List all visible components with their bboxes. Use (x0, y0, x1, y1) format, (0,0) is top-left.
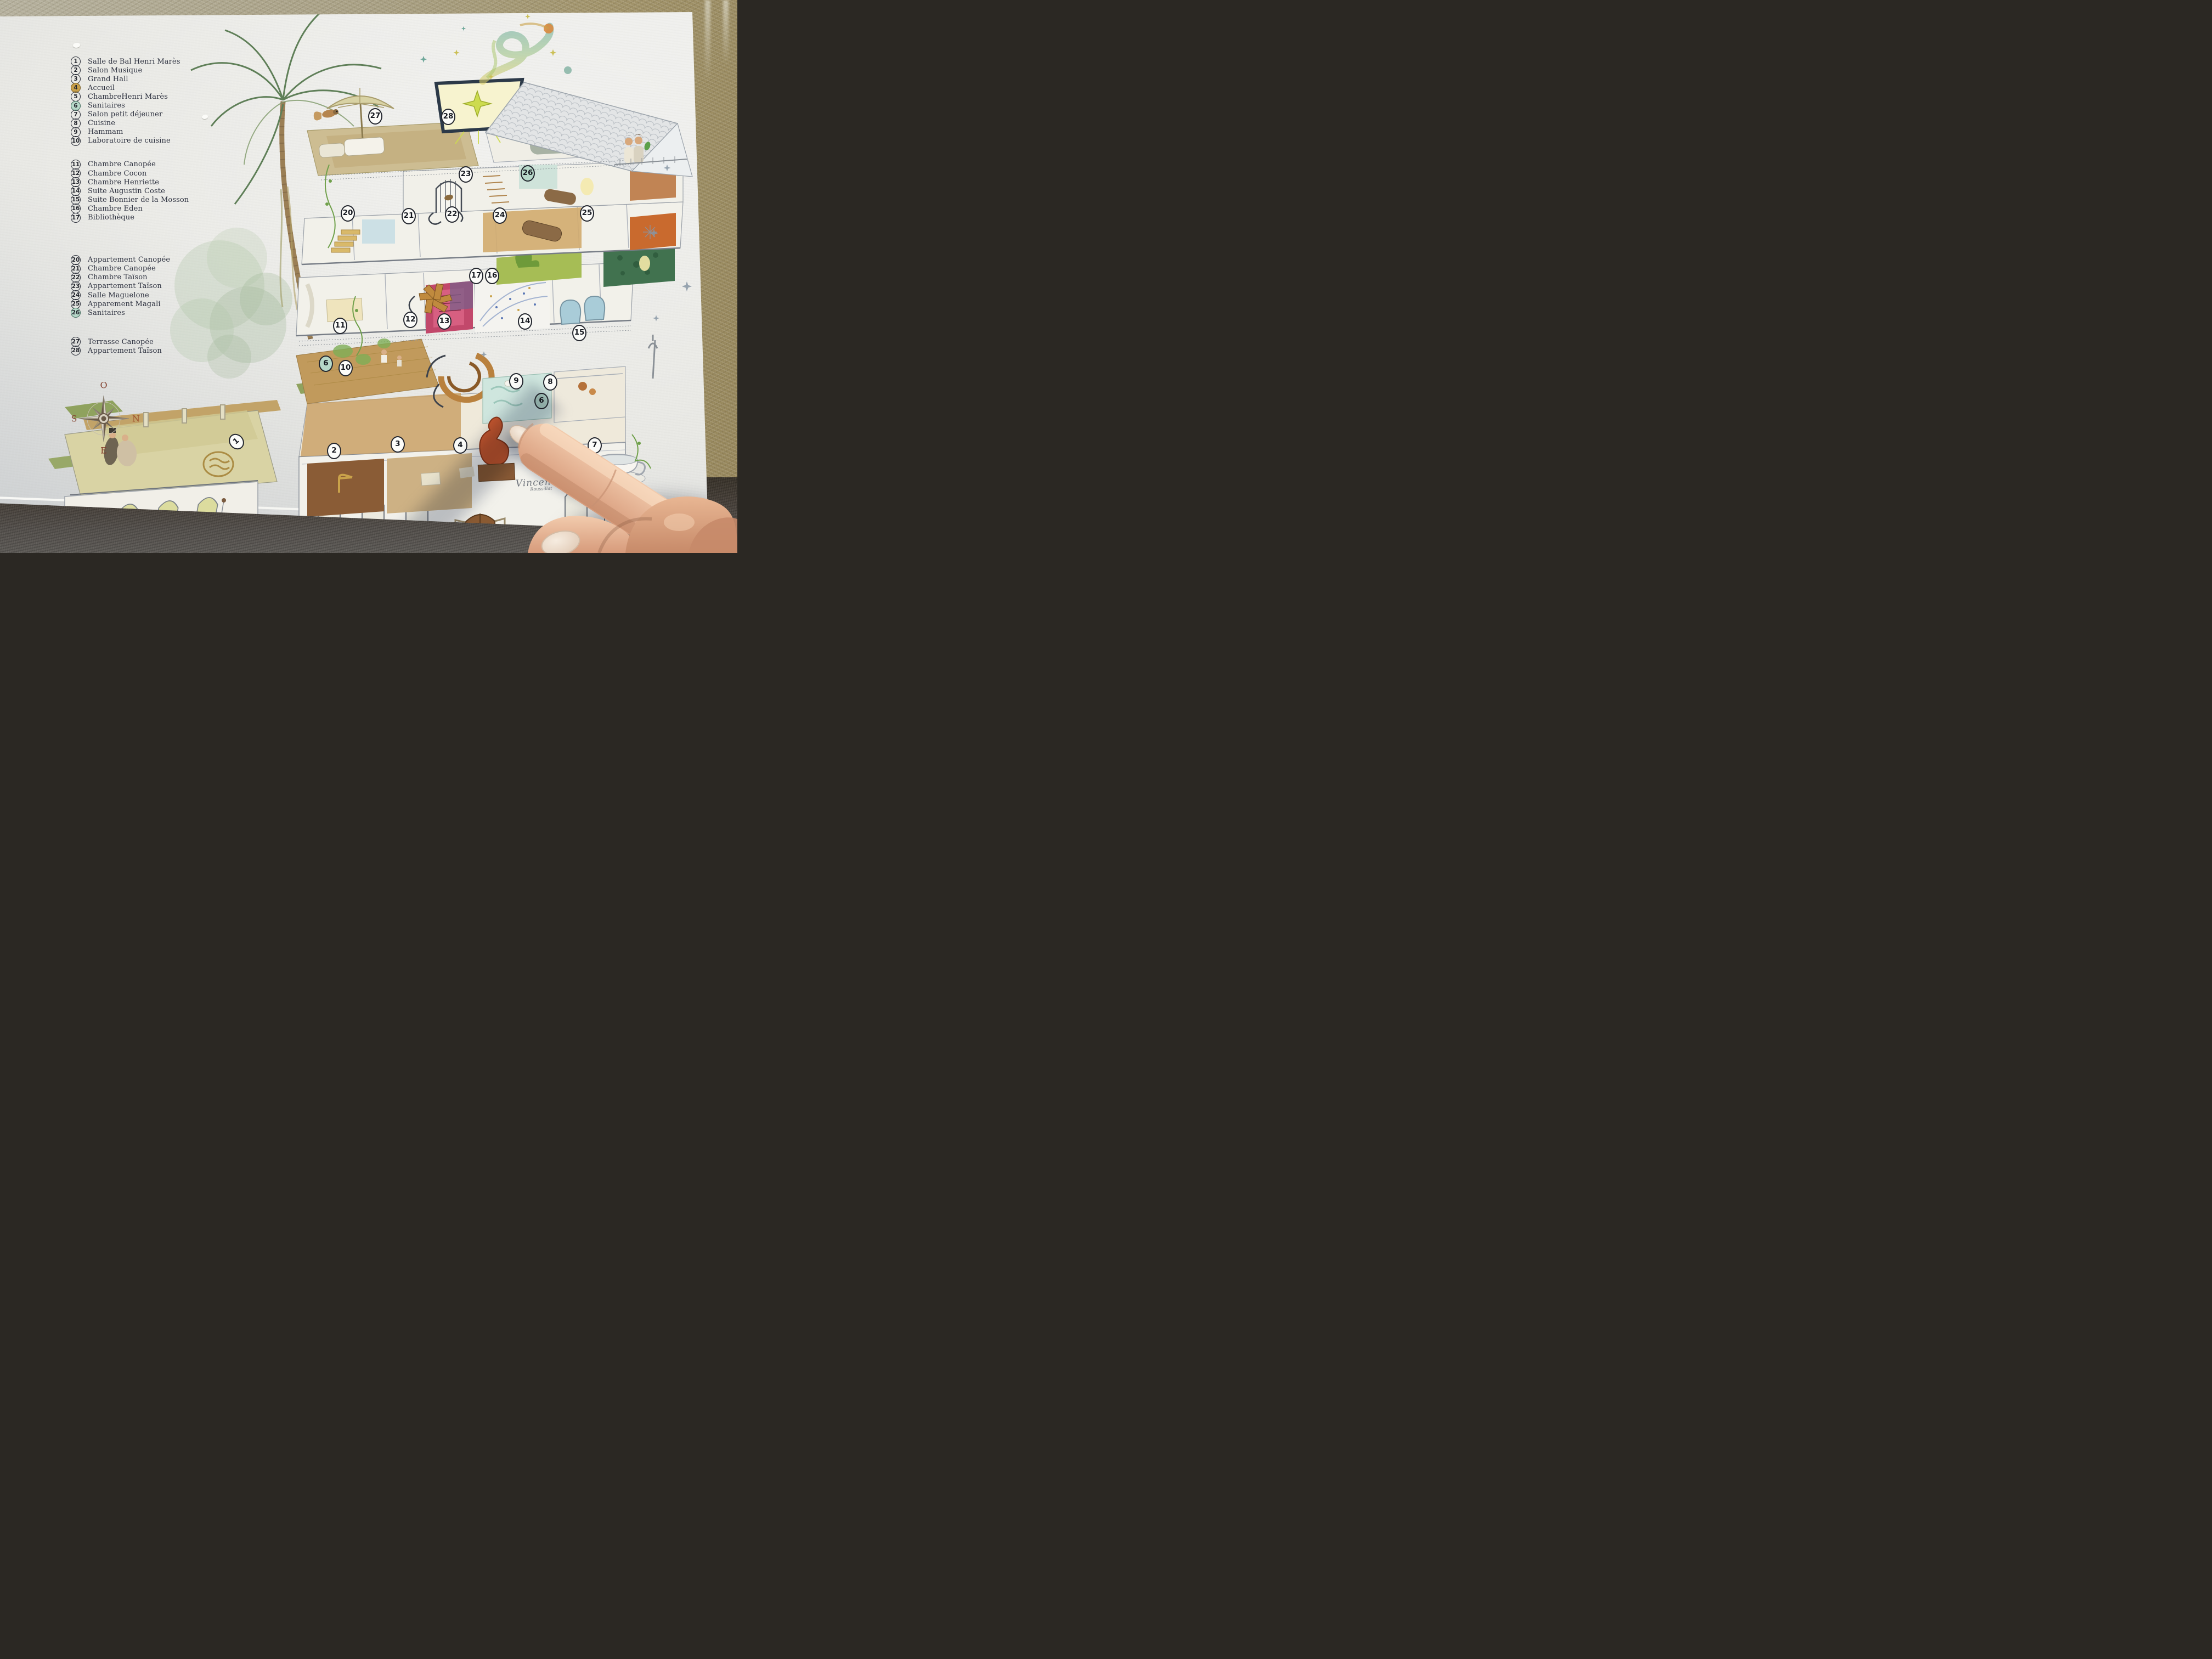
legend-item-21: 21Chambre Canopée (71, 264, 189, 273)
legend-label-27: Terrasse Canopée (88, 338, 154, 346)
legend-label-12: Chambre Cocon (88, 170, 146, 178)
room-marker-16: 16 (485, 268, 499, 284)
legend-number-6: 6 (71, 101, 81, 111)
room-marker-6: 6 (319, 356, 333, 372)
compass-rose: O N S E (71, 377, 142, 459)
legend: 1Salle de Bal Henri Marès2Salon Musique3… (71, 57, 189, 355)
room-marker-25: 25 (580, 205, 594, 222)
legend-label-25: Apparement Magali (88, 300, 161, 308)
legend-label-22: Chambre Taïson (88, 273, 148, 281)
room-marker-10: 10 (338, 360, 353, 376)
compass-letter-sud: S (71, 414, 77, 424)
legend-number-10: 10 (71, 136, 81, 146)
legend-label-9: Hammam (88, 128, 123, 136)
room-marker-7: 7 (588, 437, 602, 454)
legend-label-6: Sanitaires (88, 101, 125, 110)
wall-drip-streak (723, 0, 729, 66)
legend-group-4: 27Terrasse Canopée28Appartement Taïson (71, 337, 189, 355)
legend-label-1: Salle de Bal Henri Marès (88, 58, 180, 66)
legend-group-2: 11Chambre Canopée12Chambre Cocon13Chambr… (71, 160, 189, 222)
legend-label-16: Chambre Eden (88, 205, 143, 213)
legend-label-11: Chambre Canopée (88, 160, 156, 168)
room-marker-17: 17 (469, 268, 483, 284)
legend-item-12: 12Chambre Cocon (71, 169, 189, 178)
legend-group-3: 20Appartement Canopée21Chambre Canopée22… (71, 256, 189, 318)
legend-label-20: Appartement Canopée (88, 256, 170, 264)
room-marker-27: 27 (368, 108, 382, 125)
legend-item-26: 26Sanitaires (71, 308, 189, 317)
legend-item-5: 5ChambreHenri Marès (71, 92, 189, 101)
wall-drip-streak (705, 0, 710, 82)
roof-terrace-illustration (307, 14, 692, 180)
legend-number-26: 26 (71, 308, 81, 318)
legend-number-17: 17 (71, 213, 81, 223)
room-marker-22: 22 (445, 206, 459, 223)
legend-item-22: 22Chambre Taïson (71, 273, 189, 282)
legend-item-2: 2Salon Musique (71, 66, 189, 75)
legend-item-8: 8Cuisine (71, 119, 189, 128)
legend-item-17: 17Bibliothèque (71, 213, 189, 222)
room-marker-15: 15 (572, 325, 586, 341)
legend-item-15: 15Suite Bonnier de la Mosson (71, 195, 189, 204)
legend-label-10: Laboratoire de cuisine (88, 137, 171, 145)
legend-label-4: Accueil (88, 84, 115, 92)
room-marker-11: 11 (333, 318, 347, 334)
illustrated-hotel-map-poster: 1Salle de Bal Henri Marès2Salon Musique3… (0, 0, 737, 553)
legend-label-5: ChambreHenri Marès (88, 93, 168, 101)
legend-label-17: Bibliothèque (88, 213, 134, 222)
legend-label-14: Suite Augustin Coste (88, 187, 165, 195)
room-marker-20: 20 (341, 205, 355, 222)
legend-number-20: 20 (71, 255, 81, 265)
compass-letter-nord: N (132, 414, 140, 424)
legend-item-20: 20Appartement Canopée (71, 256, 189, 264)
legend-item-14: 14Suite Augustin Coste (71, 187, 189, 195)
legend-item-24: 24Salle Maguelone (71, 291, 189, 300)
room-marker-26: 26 (521, 165, 535, 182)
legend-item-28: 28Appartement Taïson (71, 346, 189, 355)
legend-label-15: Suite Bonnier de la Mosson (88, 196, 189, 204)
legend-label-21: Chambre Canopée (88, 264, 156, 273)
compass-letter-ouest: O (100, 380, 107, 391)
room-marker-28: 28 (441, 109, 455, 125)
legend-label-7: Salon petit déjeuner (88, 110, 162, 119)
legend-item-23: 23Appartement Taïson (71, 282, 189, 291)
legend-item-25: 25Apparement Magali (71, 300, 189, 308)
legend-item-4: 4Accueil (71, 83, 189, 92)
legend-item-27: 27Terrasse Canopée (71, 337, 189, 346)
legend-item-10: 10Laboratoire de cuisine (71, 137, 189, 145)
magic-smoke-illustration (420, 14, 572, 81)
legend-label-8: Cuisine (88, 119, 115, 127)
legend-item-1: 1Salle de Bal Henri Marès (71, 57, 189, 66)
room-marker-21: 21 (402, 208, 416, 224)
room-marker-23: 23 (459, 166, 473, 183)
compass-letter-est: E (100, 445, 107, 456)
room-marker-14: 14 (518, 313, 532, 330)
legend-label-3: Grand Hall (88, 75, 128, 83)
legend-item-11: 11Chambre Canopée (71, 160, 189, 169)
legend-number-7: 7 (71, 110, 81, 120)
room-marker-2: 2 (327, 443, 341, 459)
legend-label-23: Appartement Taïson (88, 282, 162, 290)
squirrel-icon (314, 108, 338, 120)
legend-number-5: 5 (71, 92, 81, 101)
legend-label-13: Chambre Henriette (88, 178, 159, 187)
legend-item-3: 3Grand Hall (71, 75, 189, 83)
legend-group-1: 1Salle de Bal Henri Marès2Salon Musique3… (71, 57, 189, 145)
legend-label-24: Salle Maguelone (88, 291, 149, 300)
legend-label-2: Salon Musique (88, 66, 142, 75)
room-marker-12: 12 (403, 312, 417, 328)
legend-item-16: 16Chambre Eden (71, 204, 189, 213)
room-marker-13: 13 (437, 313, 452, 330)
legend-label-28: Appartement Taïson (88, 347, 162, 355)
room-marker-3: 3 (391, 436, 405, 453)
legend-item-9: 9Hammam (71, 128, 189, 137)
room-marker-24: 24 (493, 207, 507, 224)
legend-item-6: 6Sanitaires (71, 101, 189, 110)
photo-of-hotel-cutaway-poster: 1Salle de Bal Henri Marès2Salon Musique3… (0, 0, 737, 553)
legend-number-28: 28 (71, 346, 81, 356)
legend-item-7: 7Salon petit déjeuner (71, 110, 189, 119)
legend-item-13: 13Chambre Henriette (71, 178, 189, 187)
legend-number-16: 16 (71, 204, 81, 213)
legend-label-26: Sanitaires (88, 309, 125, 317)
room-marker-8: 8 (543, 374, 557, 391)
giant-fork-icon (648, 335, 657, 379)
